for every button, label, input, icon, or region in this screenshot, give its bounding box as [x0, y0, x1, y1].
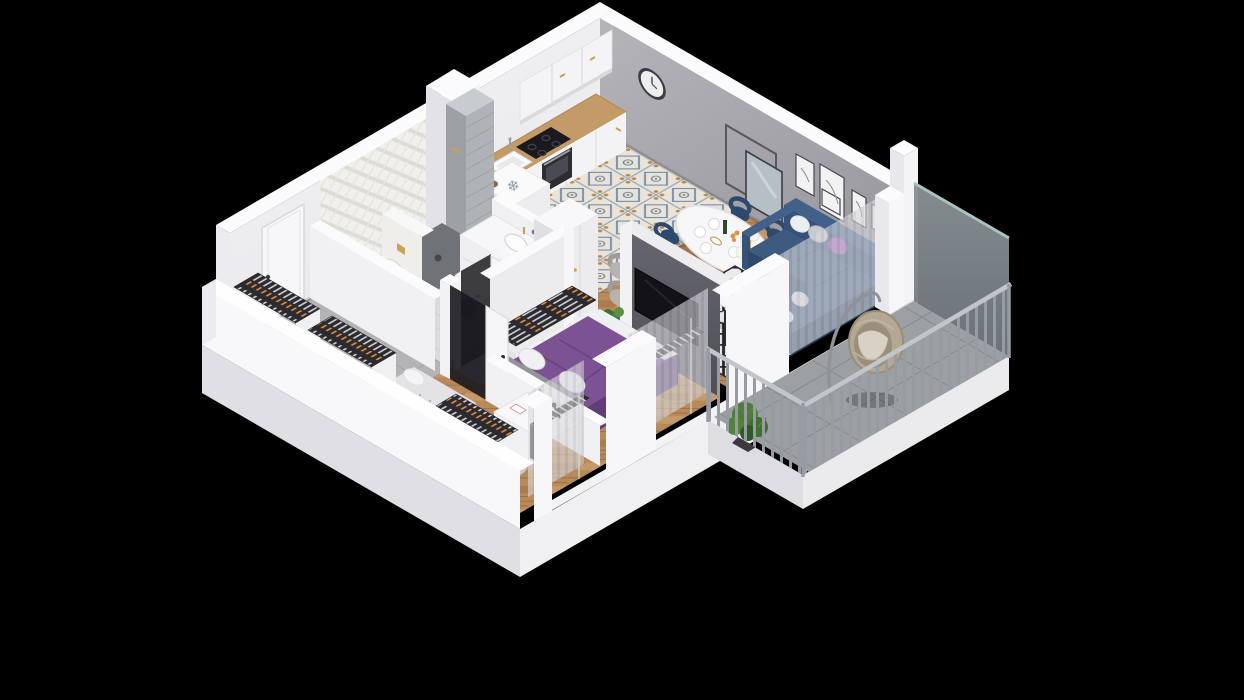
shower-drain — [435, 255, 442, 262]
render-stage: ❄ — [0, 0, 1244, 700]
apartment-isometric-render: ❄ — [0, 0, 1244, 700]
